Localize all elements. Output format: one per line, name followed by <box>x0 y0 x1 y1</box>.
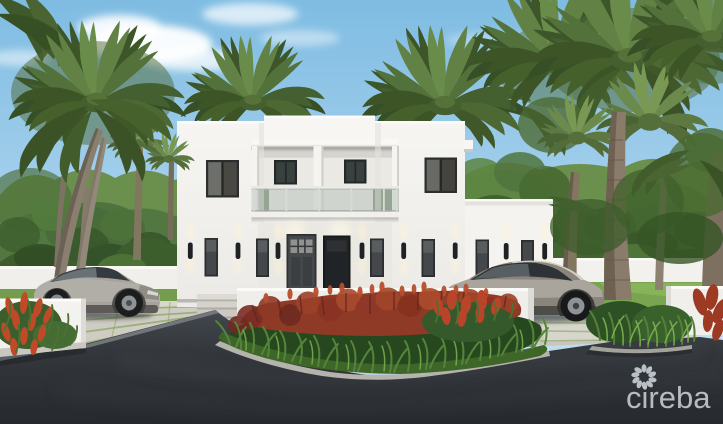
svg-text:cireba: cireba <box>626 380 711 415</box>
